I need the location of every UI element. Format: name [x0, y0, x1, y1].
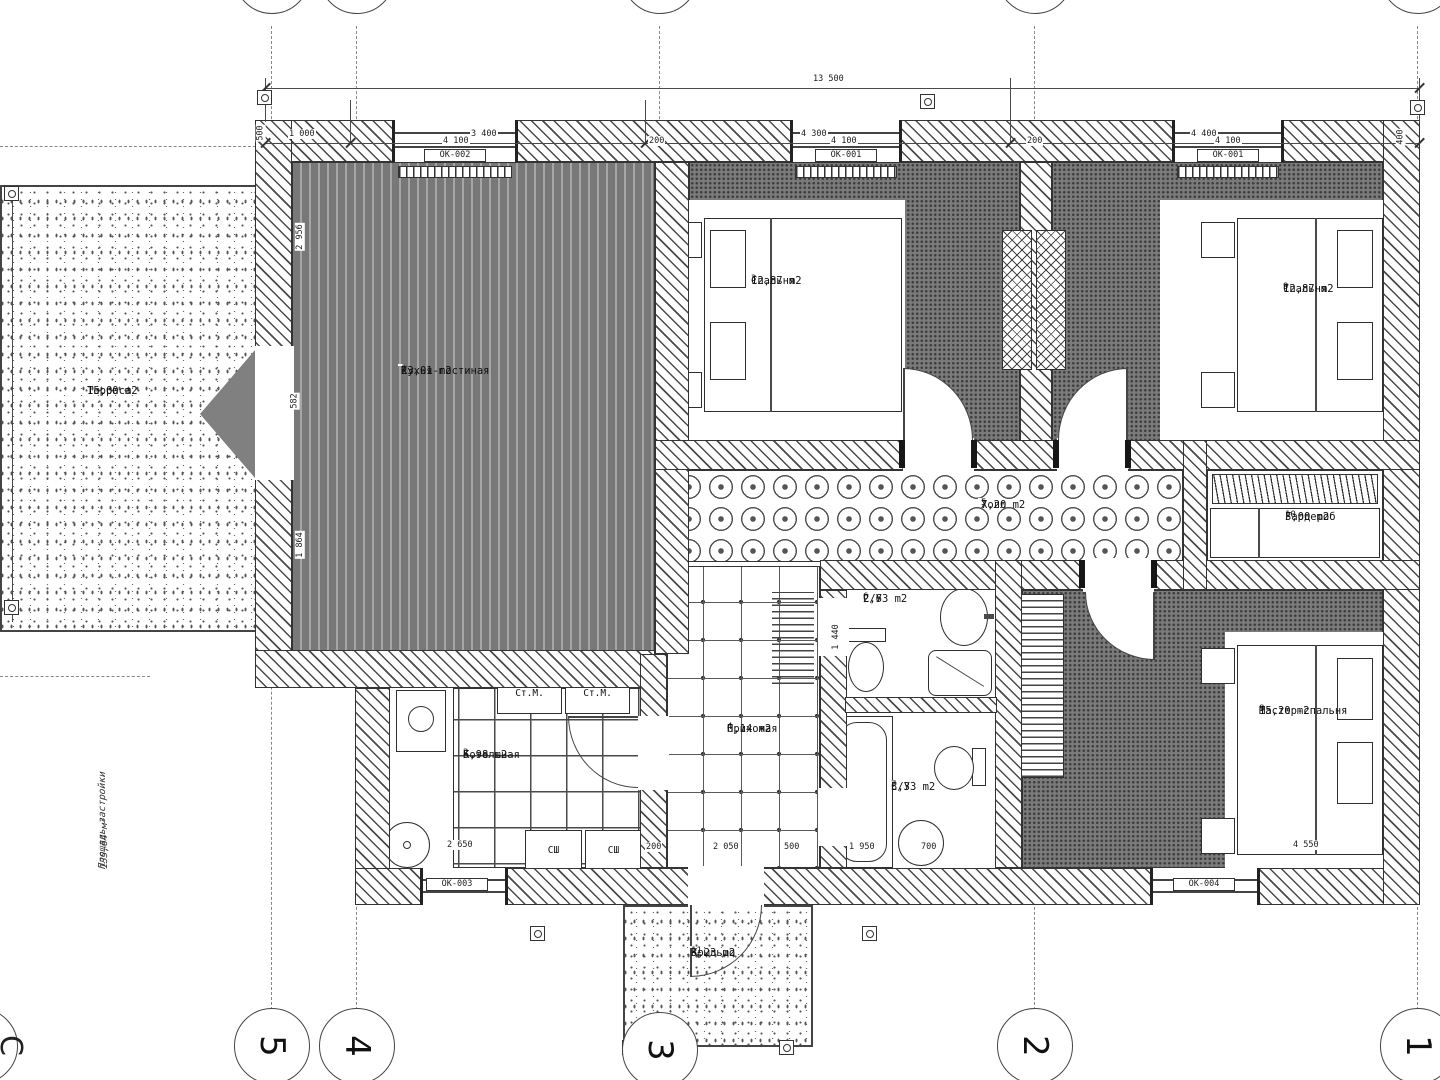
blanket-line: [770, 218, 772, 412]
door-jamb: [1125, 440, 1131, 468]
window-tag: ОК-001: [815, 149, 877, 162]
door-leaf: [1126, 368, 1128, 440]
door-leaf: [1153, 592, 1155, 660]
axis-letter: С: [0, 1035, 28, 1056]
window-tag: ОК-003: [426, 878, 488, 891]
axis-circle-4: 4: [319, 1008, 395, 1080]
cabinet-label: СШ: [608, 845, 619, 856]
wall-bottom: [355, 868, 1420, 905]
door-jamb: [1151, 560, 1157, 588]
dim-text-total: 13 500: [812, 74, 845, 84]
room-label-boiler: Котельная25,98 m2: [460, 748, 466, 750]
boiler-unit-center: [403, 841, 411, 849]
dimension-line-total: [265, 88, 1420, 89]
anchor-marker: [779, 1040, 794, 1055]
dim-text: 4 100: [1214, 136, 1242, 146]
radiator: [795, 166, 897, 178]
coat-rack: [772, 592, 814, 684]
window-tag: ОК-001: [1197, 149, 1259, 162]
pillow: [1337, 742, 1373, 804]
door-leaf: [568, 716, 638, 718]
wall-bath-master: [995, 560, 1022, 868]
pillow: [710, 322, 746, 380]
axis-circle-top: [1380, 0, 1440, 14]
axis-circle-2: 2: [997, 1008, 1073, 1080]
anchor-marker: [257, 90, 272, 105]
cabinet: СШ: [525, 830, 582, 870]
wall-kitchen-bottom: [255, 650, 655, 688]
door-opening: [253, 346, 294, 480]
dim-text: 2 956: [295, 223, 305, 251]
wall-kitchen-east: [655, 162, 689, 654]
extension-line: [1010, 78, 1011, 144]
dim-text: 4 550: [1292, 840, 1320, 850]
room-label-entry-hall: Прихожая46,14 m2: [724, 722, 730, 724]
dimension-line: [12, 192, 13, 622]
nightstand: [1201, 818, 1235, 854]
door-jamb: [1079, 560, 1085, 588]
room-label-master-bedroom: Мастер-спальня815,20 m2: [1256, 704, 1262, 706]
door-opening: [818, 788, 849, 846]
washing-machine-label: Ст.М.: [515, 688, 544, 699]
room-label-bathroom6: С/У62,63 m2: [860, 592, 866, 594]
dim-text: 2 650: [446, 840, 474, 850]
axis-circle-5: 5: [234, 1008, 310, 1080]
door-opening: [1083, 558, 1154, 592]
window-tag: ОК-002: [424, 149, 486, 162]
dim-text: 2 050: [712, 842, 740, 852]
anchor-marker: [862, 926, 877, 941]
dim-text: 500: [256, 124, 266, 141]
closet: [1002, 230, 1032, 370]
anchor-marker: [920, 94, 935, 109]
hall-floor: [672, 470, 1183, 562]
site-area-label: Площадь застройки: [96, 771, 110, 870]
dim-text: 1 950: [848, 842, 876, 852]
blanket-line: [1315, 645, 1317, 855]
floor-plan: ОК-002 ОК-001 ОК-001 ОК-003 ОК-004 Ст.М.…: [0, 0, 1440, 1080]
room-label-hall: Холл57,20 m2: [978, 498, 984, 500]
dim-text: 4 300: [800, 129, 828, 139]
dim-text: 200: [1026, 136, 1043, 146]
dim-text: 1 000: [288, 129, 316, 139]
kitchen-floor: [292, 162, 655, 652]
radiator: [398, 166, 512, 178]
dim-text: 3 400: [470, 129, 498, 139]
grid-line-horizontal: [0, 146, 256, 147]
axis-circle-top: [319, 0, 395, 14]
wall-bath-divider: [845, 697, 997, 713]
axis-circle-top: [234, 0, 310, 14]
dim-text: 400: [1396, 128, 1406, 145]
door-leaf: [690, 905, 692, 977]
site-area-note: Площадь застройки 135,64 м²: [96, 708, 112, 870]
dim-text: 4 100: [442, 136, 470, 146]
door-jamb: [1053, 440, 1059, 468]
door-opening: [638, 716, 669, 790]
anchor-marker: [1410, 100, 1425, 115]
nightstand: [1201, 372, 1235, 408]
dim-text: 700: [920, 842, 937, 852]
axis-circle-1: 1: [1380, 1008, 1440, 1080]
dim-text: 582: [290, 392, 300, 409]
room-label-porch: Крыльцо113,23 m2: [688, 946, 694, 948]
dim-text: 200: [648, 136, 665, 146]
door-leaf: [903, 368, 905, 440]
toilet-bowl: [848, 642, 884, 692]
room-label-wardrobe: Гардероб103,00 m2: [1282, 510, 1288, 512]
washbasin: [940, 588, 988, 646]
grid-line-horizontal: [0, 676, 150, 677]
pillow: [1337, 322, 1373, 380]
nightstand: [1201, 648, 1235, 684]
pillow: [710, 230, 746, 288]
wall-hall-wardrobe: [1183, 440, 1207, 590]
toilet-bowl: [934, 746, 974, 790]
dim-text: 1 864: [295, 531, 305, 559]
room-label-bathroom7: С/У73,33 m2: [888, 780, 894, 782]
door-jamb: [899, 440, 905, 468]
closet: [1036, 230, 1066, 370]
extension-line: [350, 100, 351, 144]
sink-bowl: [408, 706, 434, 732]
room-label-kitchen: Кухня-гостиная123,01 m2: [398, 364, 404, 366]
wardrobe-divider: [1258, 508, 1260, 558]
wardrobe-hanger-rod: [1212, 474, 1378, 504]
cabinet-label: СШ: [548, 845, 559, 856]
window-tag: ОК-004: [1173, 878, 1235, 891]
dim-text: 4 100: [830, 136, 858, 146]
dim-text: 1 440: [831, 623, 841, 651]
door-opening: [903, 438, 974, 472]
room-label-bedroom3: Спальня312,87 m2: [748, 274, 754, 276]
door-opening: [1057, 438, 1128, 472]
toilet-tank: [846, 628, 886, 642]
anchor-marker: [4, 600, 19, 615]
radiator: [1177, 166, 1279, 178]
axis-circle-3: 3: [622, 1012, 698, 1080]
washing-machine-label: Ст.М.: [583, 688, 612, 699]
anchor-marker: [530, 926, 545, 941]
wall-right: [1383, 120, 1420, 905]
axis-circle-top: [622, 0, 698, 14]
extension-line: [645, 100, 646, 144]
toilet-tank: [972, 748, 986, 786]
anchor-marker: [4, 186, 19, 201]
nightstand: [1201, 222, 1235, 258]
cabinet: СШ: [585, 830, 642, 870]
door-opening: [688, 866, 764, 907]
dim-text: 200: [645, 842, 662, 852]
washbasin-tap: [984, 614, 994, 619]
wall-bedrooms-hall: [655, 440, 1420, 470]
axis-circle-top: [997, 0, 1073, 14]
pillow: [1337, 230, 1373, 288]
dim-text: 500: [783, 842, 800, 852]
room-label-bedroom9: Спальня912,87 m2: [1280, 282, 1286, 284]
door-jamb: [971, 440, 977, 468]
blanket-line: [1315, 218, 1317, 412]
room-label-terrace: Терраса15,00 m2: [84, 384, 90, 386]
